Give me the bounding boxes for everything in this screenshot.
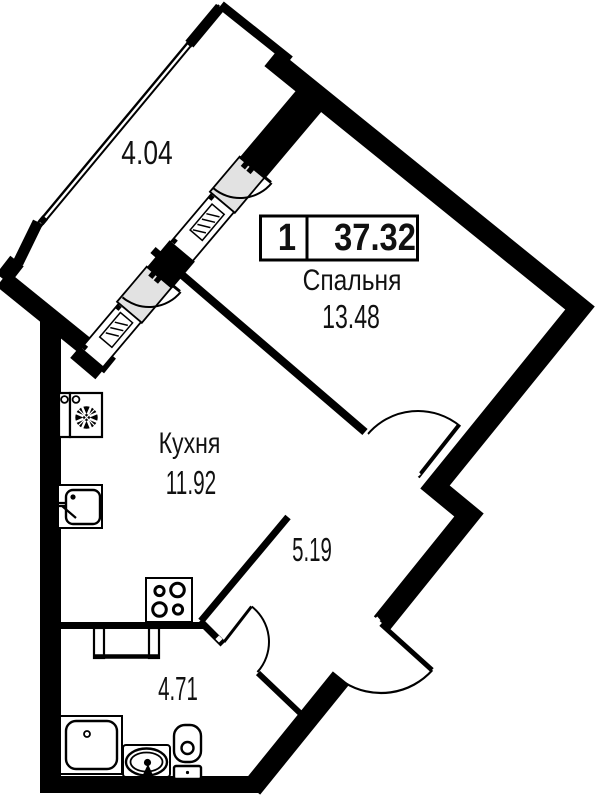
svg-text:Спальня: Спальня xyxy=(303,263,402,297)
svg-text:Кухня: Кухня xyxy=(159,426,221,460)
svg-text:4.04: 4.04 xyxy=(121,135,172,171)
svg-text:13.48: 13.48 xyxy=(322,299,380,336)
svg-text:5.19: 5.19 xyxy=(292,531,332,568)
svg-text:11.92: 11.92 xyxy=(166,464,216,501)
svg-text:1: 1 xyxy=(278,216,296,259)
svg-text:37.32: 37.32 xyxy=(334,216,416,259)
svg-text:4.71: 4.71 xyxy=(158,670,198,707)
